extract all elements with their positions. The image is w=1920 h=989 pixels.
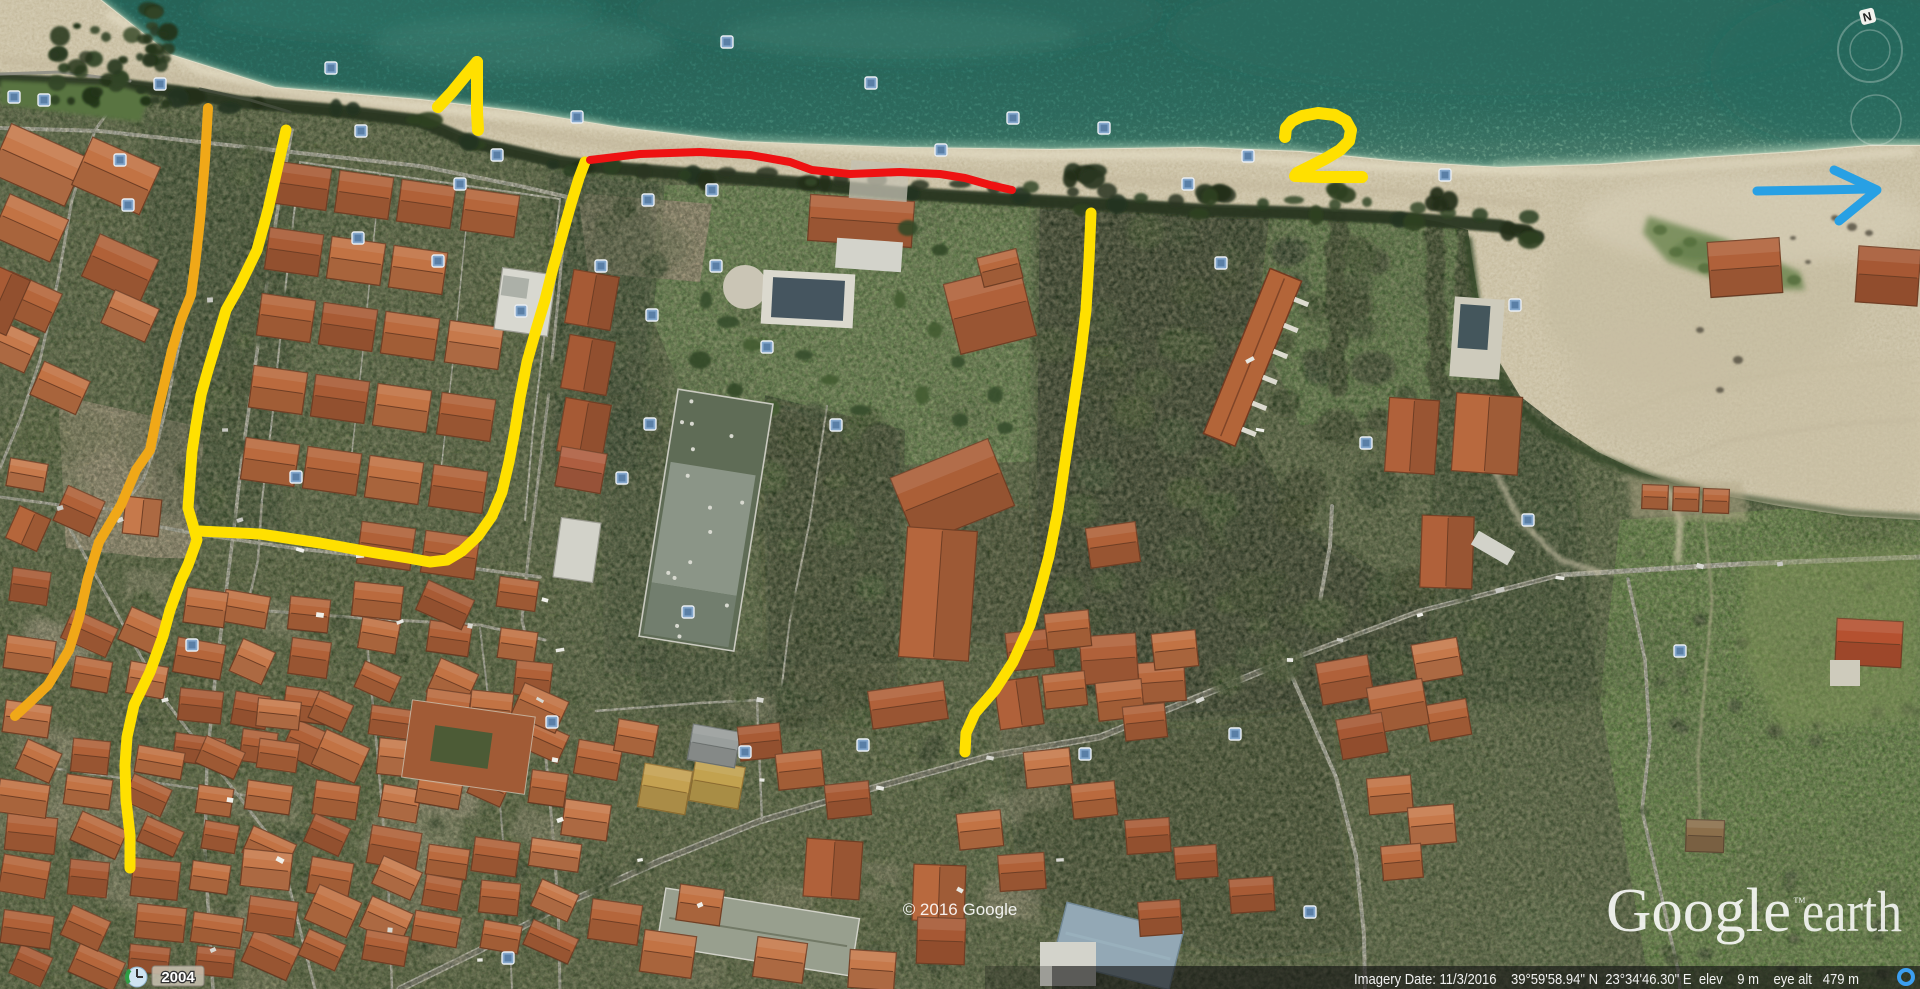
svg-text:2004: 2004 <box>161 969 195 986</box>
svg-text:Google: Google <box>1606 877 1791 945</box>
svg-text:Imagery Date: 11/3/2016 39°: Imagery Date: 11/3/2016 39°59'58.94" N 2… <box>1354 971 1859 988</box>
svg-text:© 2016 Google: © 2016 Google <box>903 900 1018 919</box>
svg-text:earth: earth <box>1802 879 1902 944</box>
